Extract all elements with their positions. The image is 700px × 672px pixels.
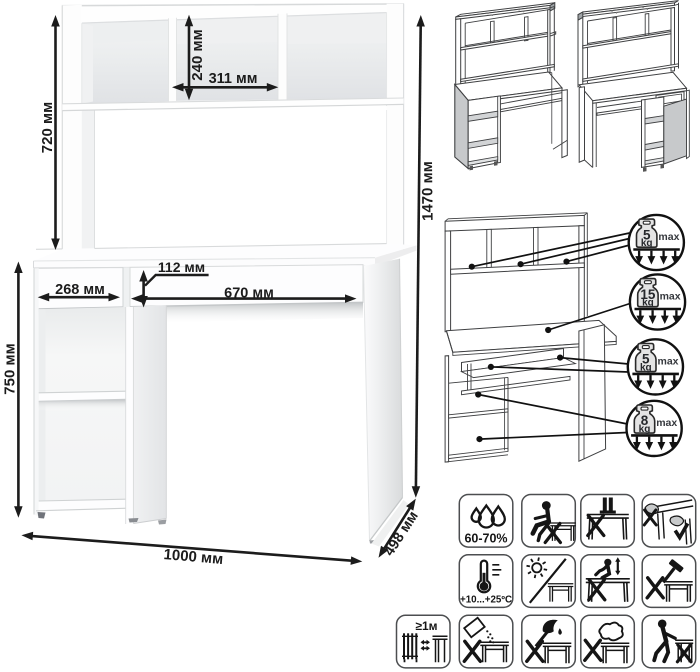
svg-text:+10...+25ºC: +10...+25ºC [460, 594, 512, 605]
svg-text:720 мм: 720 мм [39, 102, 56, 153]
svg-text:1470 мм: 1470 мм [419, 161, 437, 221]
svg-text:kg: kg [641, 238, 653, 249]
svg-text:max: max [656, 417, 677, 429]
svg-text:≥1м: ≥1м [415, 619, 437, 633]
svg-text:max: max [660, 290, 681, 302]
svg-text:kg: kg [642, 298, 654, 309]
svg-text:60-70%: 60-70% [464, 532, 507, 546]
svg-text:240 мм: 240 мм [189, 29, 206, 80]
svg-text:kg: kg [640, 363, 652, 374]
svg-text:268 мм: 268 мм [55, 282, 105, 298]
svg-text:311 мм: 311 мм [209, 71, 258, 87]
svg-text:112 мм: 112 мм [158, 259, 205, 275]
svg-text:max: max [658, 231, 679, 243]
svg-text:max: max [657, 355, 678, 367]
svg-text:670 мм: 670 мм [224, 285, 274, 301]
svg-text:750 мм: 750 мм [1, 343, 18, 394]
svg-text:kg: kg [639, 424, 651, 435]
